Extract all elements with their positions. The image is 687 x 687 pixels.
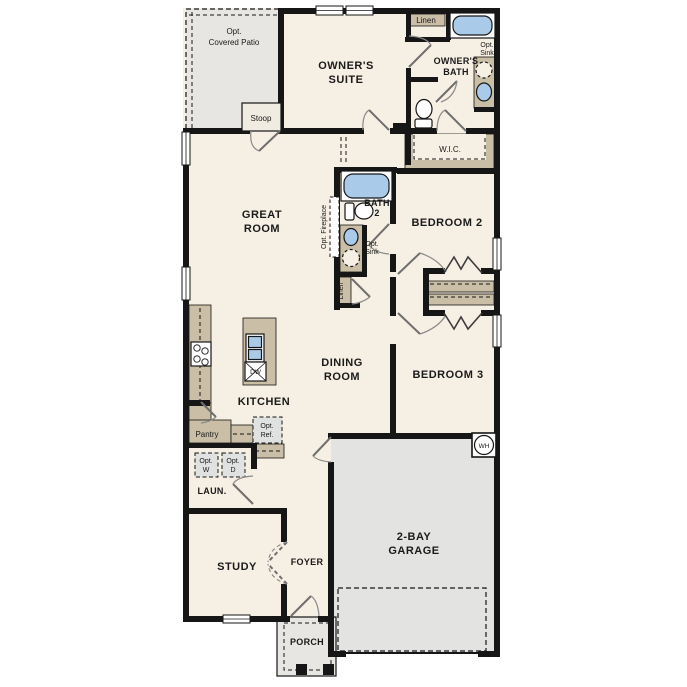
window — [182, 132, 190, 165]
svg-text:Ref.: Ref. — [261, 432, 274, 439]
opt-washer-label: Opt. — [199, 458, 212, 465]
foyer-label: FOYER — [291, 557, 324, 567]
wic-label: W.I.C. — [439, 145, 461, 154]
opt-sink-bath2-label: Opt. — [365, 241, 378, 248]
optional-sink-icon — [343, 250, 360, 267]
optional-refrigerator — [253, 417, 282, 443]
garage-label: 2-BAY — [397, 531, 432, 543]
dw-label: DW — [250, 369, 262, 376]
window — [182, 267, 190, 300]
owners-bath-label: OWNER'S — [434, 56, 479, 66]
bedroom3-label: BEDROOM 3 — [412, 369, 483, 381]
laundry-label: LAUN. — [198, 486, 227, 496]
owners-suite-label: OWNER'S — [318, 60, 374, 72]
svg-text:2: 2 — [374, 208, 379, 218]
pantry-label: Pantry — [195, 430, 218, 439]
window — [493, 315, 501, 347]
svg-text:Sink: Sink — [365, 249, 379, 256]
stoop-label: Stoop — [251, 114, 272, 123]
window — [316, 6, 343, 15]
opt-dryer-label: Opt. — [226, 458, 239, 465]
porch-label: PORCH — [290, 637, 324, 647]
bath2-label: BATH — [364, 198, 390, 208]
bedroom2-label: BEDROOM 2 — [411, 217, 482, 229]
kitchen-sink-icon — [246, 334, 264, 362]
opt-ref-label: Opt. — [260, 423, 273, 430]
sink-icon — [477, 83, 492, 101]
wh-label: WH — [479, 443, 490, 450]
window — [223, 615, 250, 623]
linen-hall-label: Linen — [338, 282, 345, 299]
window — [346, 6, 373, 15]
svg-text:W: W — [203, 467, 210, 474]
great-room-label: GREAT — [242, 209, 282, 221]
svg-text:BATH: BATH — [443, 67, 469, 77]
porch-post — [323, 664, 334, 675]
study-label: STUDY — [217, 561, 257, 573]
closet-shelf-2 — [428, 294, 494, 305]
floor-plan-page: Opt. Covered Patio Stoop OWNER'S SUITE L… — [0, 0, 687, 687]
svg-text:D: D — [230, 467, 235, 474]
patio-label: Opt. — [226, 27, 241, 36]
closet-shelf-1 — [428, 281, 494, 292]
floor-plan-drawing: Opt. Covered Patio Stoop OWNER'S SUITE L… — [0, 0, 687, 687]
kitchen-label: KITCHEN — [238, 396, 290, 408]
window — [493, 238, 501, 270]
opt-fireplace-label: Opt. Fireplace — [321, 205, 328, 249]
svg-text:ROOM: ROOM — [324, 371, 360, 383]
svg-text:Covered Patio: Covered Patio — [209, 38, 260, 47]
svg-text:SUITE: SUITE — [329, 74, 364, 86]
optional-sink-icon — [476, 62, 492, 78]
bathtub-icon — [450, 13, 495, 38]
toilet-icon — [415, 100, 432, 129]
dining-room-label: DINING — [321, 357, 363, 369]
svg-text:ROOM: ROOM — [244, 223, 280, 235]
svg-text:GARAGE: GARAGE — [388, 545, 439, 557]
optional-fireplace — [330, 197, 339, 257]
opt-sink-owners-label: Opt. — [480, 42, 493, 49]
bathtub-icon — [341, 171, 392, 201]
linen-upper-label: Linen — [416, 16, 436, 25]
floor-fills — [183, 8, 500, 676]
porch-post — [296, 664, 307, 675]
sink-icon — [344, 229, 358, 246]
svg-text:Sink: Sink — [480, 50, 494, 57]
cooktop-icon — [191, 342, 211, 366]
